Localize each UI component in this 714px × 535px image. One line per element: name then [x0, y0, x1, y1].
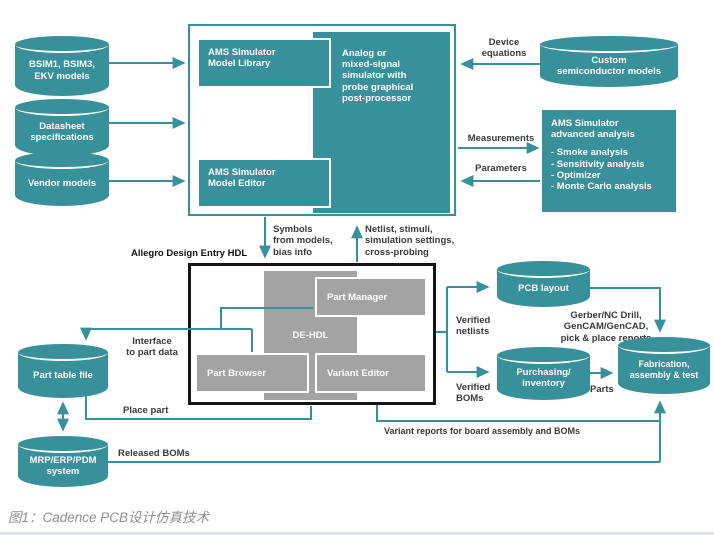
cylinder-pcb-layout: PCB layout	[497, 261, 590, 307]
pcb-design-flow-diagram: BSIM1, BSIM3, EKV models Datasheet speci…	[0, 0, 714, 535]
label-measurements: Measurements	[462, 133, 540, 144]
cylinder-fabrication-assembly-test: Fabrication, assembly & test	[618, 337, 710, 394]
label-released-boms: Released BOMs	[118, 448, 190, 459]
part-manager-label: Part Manager	[327, 292, 387, 303]
variant-editor-label: Variant Editor	[327, 368, 389, 379]
model-library-label: AMS Simulator Model Library	[208, 47, 323, 69]
part-manager-box: Part Manager	[315, 277, 427, 317]
label-parts: Parts	[590, 384, 614, 395]
advanced-analysis-box: AMS Simulator advanced analysis - Smoke …	[542, 110, 676, 212]
part-browser-box: Part Browser	[195, 353, 309, 393]
model-editor-label: AMS Simulator Model Editor	[208, 167, 323, 189]
cylinder-label: BSIM1, BSIM3, EKV models	[15, 36, 109, 96]
cylinder-vendor-models: Vendor models	[15, 152, 109, 206]
cylinder-label: PCB layout	[497, 261, 590, 307]
advanced-analysis-items: - Smoke analysis - Sensitivity analysis …	[551, 147, 672, 192]
label-place-part: Place part	[123, 405, 168, 416]
advanced-analysis-title: AMS Simulator advanced analysis	[551, 118, 672, 140]
label-allegro-design-entry-hdl: Allegro Design Entry HDL	[131, 248, 247, 259]
variant-editor-box: Variant Editor	[315, 353, 427, 393]
cylinder-part-table-file: Part table file	[18, 344, 108, 398]
cylinder-datasheet-specs: Datasheet specifications	[15, 99, 109, 156]
cylinder-mrp-erp-pdm: MRP/ERP/PDM system	[18, 436, 108, 487]
model-editor-box: AMS Simulator Model Editor	[197, 158, 331, 208]
analog-simulator-label: Analog or mixed-signal simulator with pr…	[342, 48, 444, 104]
cylinder-label: Custom semiconductor models	[540, 36, 678, 87]
cylinder-label: MRP/ERP/PDM system	[18, 436, 108, 487]
cylinder-label: Fabrication, assembly & test	[618, 337, 710, 394]
cylinder-label: Part table file	[18, 344, 108, 398]
label-device-equations: Device equations	[468, 37, 540, 60]
analog-simulator-box: Analog or mixed-signal simulator with pr…	[313, 32, 450, 213]
label-netlist-stimuli: Netlist, stimuli, simulation settings, c…	[365, 224, 454, 258]
cylinder-label: Purchasing/ inventory	[497, 347, 590, 400]
label-parameters: Parameters	[468, 163, 534, 174]
label-interface-to-part-data: Interface to part data	[119, 336, 185, 359]
cylinder-custom-semiconductor-models: Custom semiconductor models	[540, 36, 678, 87]
label-verified-netlists: Verified netlists	[456, 315, 490, 338]
cylinder-label: Vendor models	[15, 152, 109, 206]
part-browser-label: Part Browser	[207, 368, 266, 379]
label-symbols-from-models: Symbols from models, bias info	[273, 224, 333, 258]
model-library-box: AMS Simulator Model Library	[197, 38, 331, 88]
cylinder-label: Datasheet specifications	[15, 99, 109, 156]
cylinder-bsim-models: BSIM1, BSIM3, EKV models	[15, 36, 109, 96]
figure-caption: 图1：Cadence PCB设计仿真技术	[8, 506, 209, 526]
de-hdl-label: DE-HDL	[293, 330, 329, 341]
cylinder-purchasing-inventory: Purchasing/ inventory	[497, 347, 590, 400]
label-variant-reports: Variant reports for board assembly and B…	[384, 426, 580, 437]
label-verified-boms: Verified BOMs	[456, 382, 490, 405]
